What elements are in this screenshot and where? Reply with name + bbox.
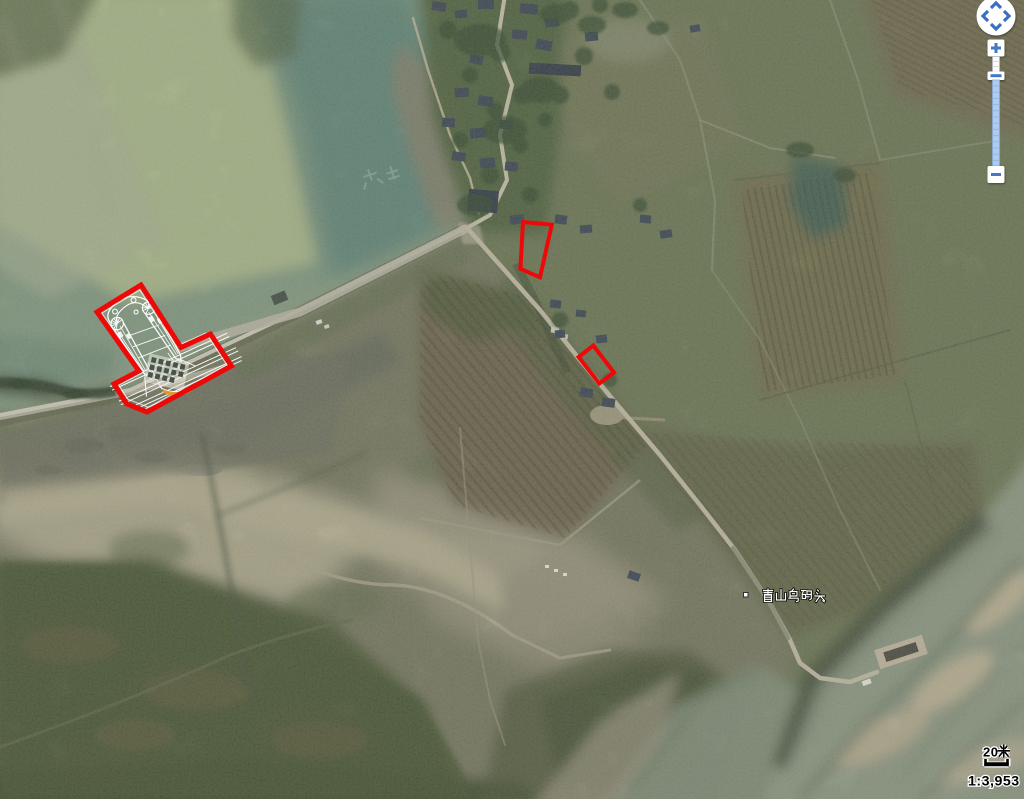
svg-text:20: 20 [983, 745, 998, 760]
svg-text:1:3,953: 1:3,953 [968, 774, 1020, 790]
